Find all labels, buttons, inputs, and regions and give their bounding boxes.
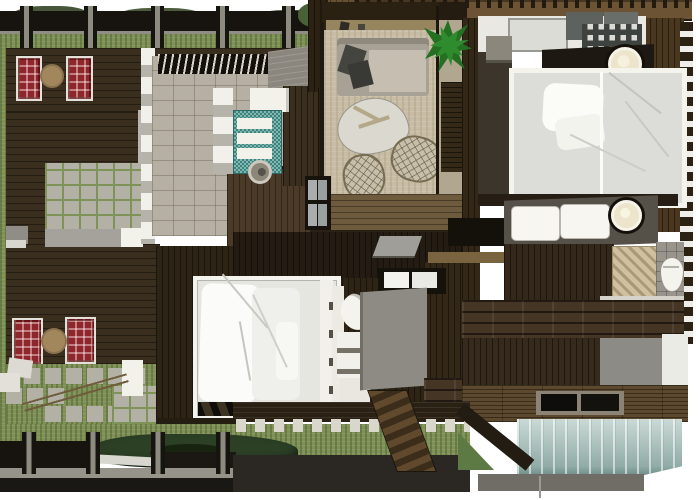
deck-framing <box>462 300 684 340</box>
window-pane <box>412 272 437 288</box>
white-bench <box>250 88 289 112</box>
pergola-post <box>151 432 165 474</box>
bathroom-floor-wood <box>504 244 614 302</box>
wash-basin <box>248 160 272 184</box>
side-table <box>40 64 64 88</box>
toilet-seat-line <box>663 266 679 268</box>
side-table <box>41 328 67 354</box>
tub-step <box>237 118 272 129</box>
pergola-beam-south <box>0 441 92 468</box>
lounge-chair <box>16 56 42 101</box>
white-planter <box>0 373 20 392</box>
pergola-post <box>282 6 295 50</box>
rail-hinge <box>329 358 333 366</box>
skylight-hatch-glass <box>581 394 619 411</box>
entry-awning <box>372 236 422 258</box>
rail-hinge <box>329 330 333 338</box>
pergola-post <box>22 432 36 474</box>
threshold-board <box>428 252 516 263</box>
living-north-wall <box>322 2 440 22</box>
rear-corridor <box>462 338 602 392</box>
rail-hinge <box>329 302 333 310</box>
deck-west <box>6 112 142 170</box>
lounge-chair <box>66 56 93 101</box>
bedroom-east-floor <box>478 52 512 200</box>
skylight-hatch-glass <box>541 394 577 411</box>
lounge-chair <box>65 317 96 364</box>
window-pane <box>308 180 317 200</box>
pergola-post <box>20 6 33 50</box>
sofa-seat <box>369 50 426 92</box>
dark-console <box>448 218 510 246</box>
footing-blocks <box>236 419 470 432</box>
door-mat <box>6 240 26 248</box>
tub-step <box>237 148 272 159</box>
understory-shadow <box>233 455 470 492</box>
white-pillar <box>121 228 143 247</box>
pergola-post <box>151 6 164 50</box>
paver-patio <box>45 163 143 231</box>
window-pane <box>318 180 327 200</box>
white-column-row <box>213 88 233 174</box>
window-pane <box>318 204 327 226</box>
window-pane <box>308 204 317 226</box>
canopy-divider <box>600 72 603 194</box>
bed-pillow <box>554 113 606 151</box>
vanity-sink <box>560 204 610 239</box>
floor-plan-render <box>0 0 700 500</box>
pergola-post <box>216 432 230 474</box>
stepping-stones <box>45 406 117 422</box>
vanity-sink <box>511 206 560 241</box>
skylight-panel <box>508 18 568 52</box>
tub-step <box>237 133 272 144</box>
bed-drape <box>198 283 260 403</box>
pergola-post <box>84 6 97 50</box>
rail-hinge <box>329 386 333 394</box>
vessel-sink <box>611 200 642 231</box>
concrete-wall-panel <box>360 288 427 391</box>
frosted-glass-wall <box>517 419 682 478</box>
pergola-post <box>216 6 229 50</box>
bath-mat <box>612 246 660 302</box>
window-pane <box>384 272 409 288</box>
glass-wall-base <box>478 474 644 491</box>
pergola-post <box>86 432 100 474</box>
nightstand <box>486 36 512 63</box>
plumb-line <box>539 476 541 498</box>
concrete-wall <box>600 338 664 392</box>
